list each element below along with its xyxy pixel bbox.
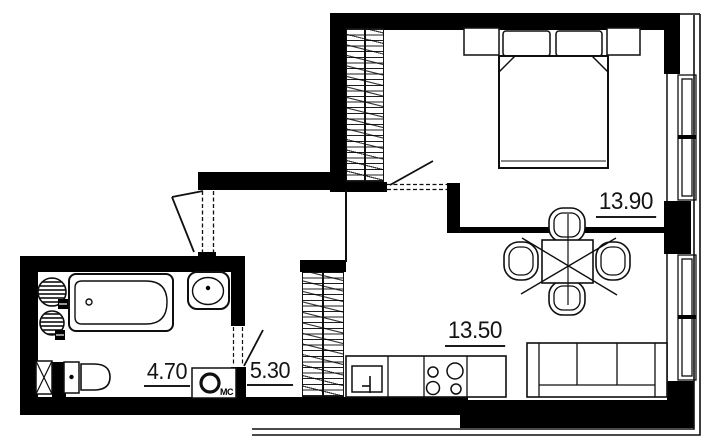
kitchen-counter <box>346 356 506 397</box>
entrance-door <box>172 191 214 252</box>
nightstand-left <box>464 28 499 55</box>
chair-bottom <box>549 281 585 315</box>
kitchen-sink <box>352 366 382 393</box>
toilet <box>64 362 110 393</box>
window-bedroom <box>667 74 696 201</box>
chair-right <box>596 242 630 280</box>
room-label-hallway: 5.30 <box>247 359 293 386</box>
nightstand-right <box>607 28 640 55</box>
washing-machine-label: МС <box>220 387 233 397</box>
room-label-living: 13.50 <box>445 319 505 347</box>
washbasin <box>188 272 229 309</box>
water-risers <box>38 278 68 340</box>
floor-plan: 13.90 13.50 5.30 4.70 МС <box>0 0 710 443</box>
room-label-bathroom: 4.70 <box>144 360 190 387</box>
bedroom-door <box>387 161 447 190</box>
bathtub <box>69 274 173 331</box>
pillow-right <box>556 31 602 56</box>
room-label-bedroom: 13.90 <box>596 190 656 218</box>
chair-top <box>549 208 585 242</box>
chair-left <box>504 242 538 280</box>
vent-shaft <box>36 361 52 394</box>
window-living <box>667 254 696 381</box>
bed-frame <box>499 56 608 168</box>
sofa <box>527 343 667 397</box>
pillow-left <box>503 31 550 56</box>
plan-lineart <box>0 0 710 443</box>
double-bed <box>464 28 640 168</box>
